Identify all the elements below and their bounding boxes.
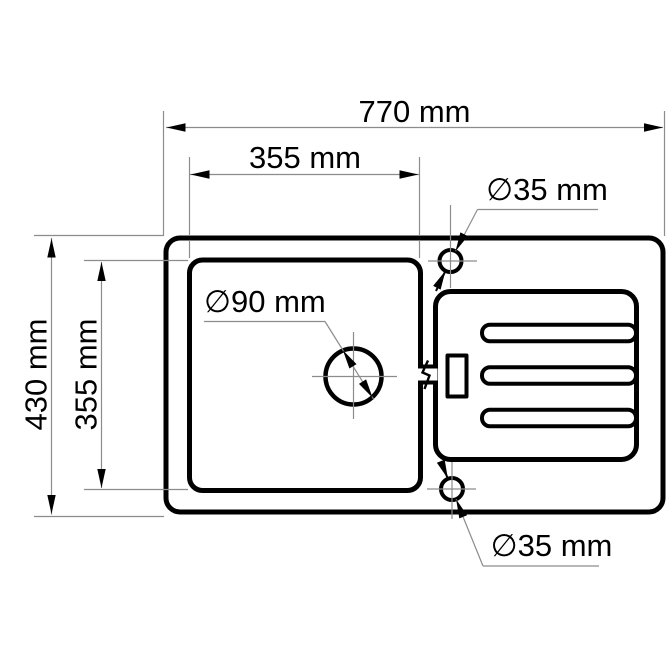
dim-label-tap-hole-bottom: ∅35 mm [491,528,613,563]
dim-label-bowl-width: 355 mm [249,140,361,175]
arrowhead-right [644,123,663,131]
arrowhead-left [191,170,210,178]
drainboard-rib [482,325,636,342]
arrowhead-top [47,239,55,258]
dim-label-tap-hole-top: ∅35 mm [486,172,608,207]
arrowhead-right [400,170,419,178]
dim-label-overall-width: 770 mm [359,94,471,129]
leader-diagonal [462,515,483,567]
sink-dimension-diagram: 770 mm 355 mm 430 mm 355 mm ∅ [0,0,670,670]
drainboard-rib [482,367,636,384]
dim-label-bowl-depth: 355 mm [69,319,104,431]
dim-label-drain-hole: ∅90 mm [204,284,326,319]
dim-label-overall-depth: 430 mm [19,319,54,431]
arrowhead-bottom [97,469,105,488]
arrowhead-bottom [47,495,55,514]
arrowhead-top [97,262,105,281]
technical-drawing-canvas: 770 mm 355 mm 430 mm 355 mm ∅ [0,0,670,670]
drainboard-rib [482,410,636,427]
arrowhead-left [167,123,186,131]
sink-top-view [166,238,663,512]
leader-diagonal [464,210,477,236]
accessory-hole-rect [448,356,467,397]
dim-overall-width: 770 mm [164,94,665,236]
